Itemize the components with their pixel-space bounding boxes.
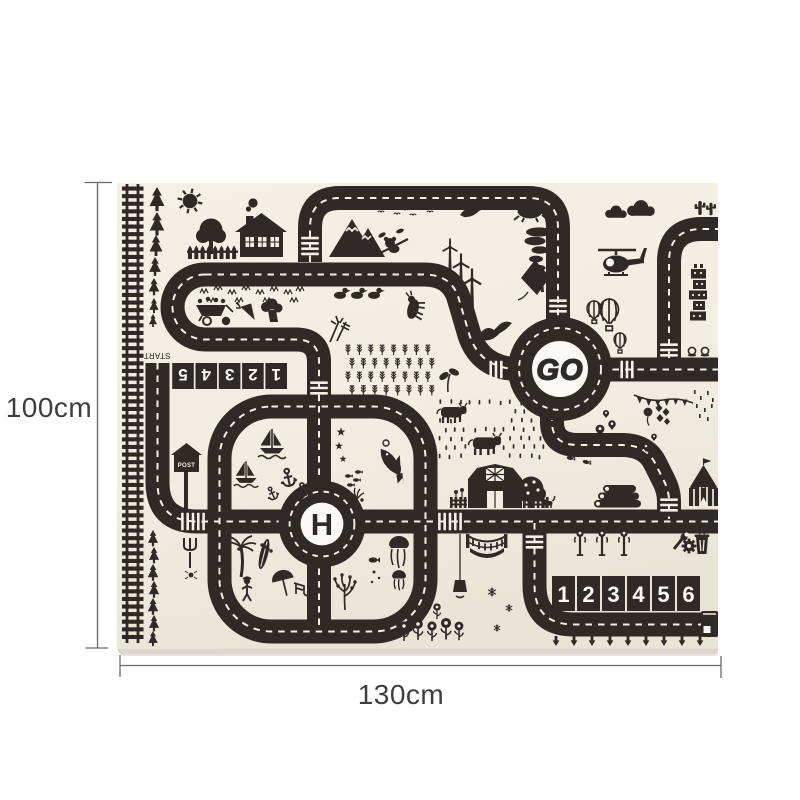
svg-text:3: 3 (225, 365, 234, 384)
svg-text:4: 4 (201, 365, 211, 384)
svg-text:H: H (311, 507, 333, 542)
svg-text:4: 4 (632, 582, 645, 607)
svg-text:130cm: 130cm (358, 679, 445, 710)
svg-text:6: 6 (682, 582, 694, 607)
svg-text:2: 2 (582, 582, 594, 607)
svg-text:START: START (144, 351, 171, 360)
svg-text:2: 2 (248, 365, 257, 384)
svg-text:GO: GO (536, 355, 583, 387)
svg-text:1: 1 (557, 582, 569, 607)
svg-text:100cm: 100cm (6, 392, 93, 423)
svg-text:1: 1 (271, 365, 280, 384)
svg-text:3: 3 (607, 582, 619, 607)
svg-text:5: 5 (657, 582, 669, 607)
svg-text:5: 5 (178, 365, 187, 384)
svg-text:POST: POST (178, 463, 196, 469)
